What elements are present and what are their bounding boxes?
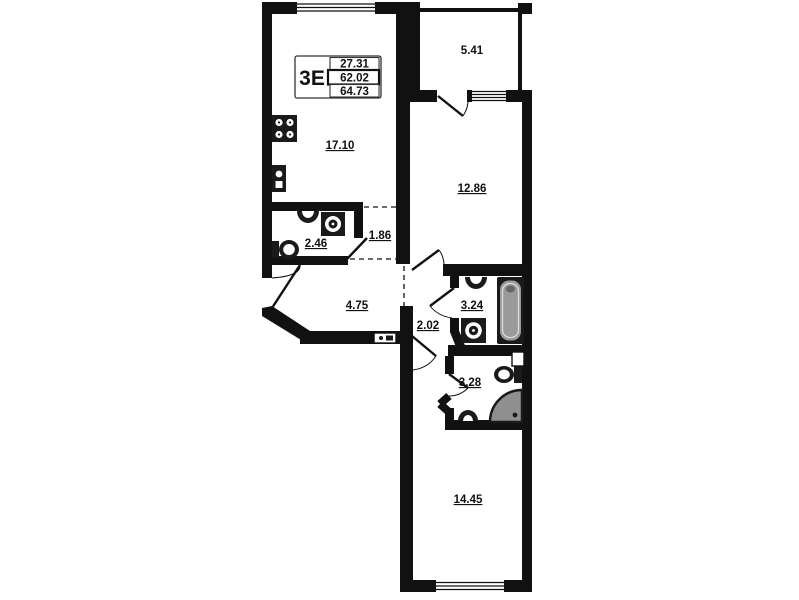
wall-balcony-right — [518, 10, 522, 92]
window-kitchen-top — [297, 4, 375, 11]
doors — [272, 96, 468, 396]
entry-door — [272, 265, 300, 308]
wall-bath1-right — [354, 202, 363, 238]
bathtub-icon — [497, 277, 524, 344]
room-label-bathroom2: 3.24 — [461, 300, 484, 312]
room-label-bedroom1: 12.86 — [458, 183, 487, 195]
vent-shaft — [512, 352, 524, 366]
washing-machine-icon — [321, 212, 345, 236]
wall-bottom-a — [400, 580, 436, 592]
kitchen-sink-icon — [272, 165, 286, 192]
bathroom1-door — [347, 238, 367, 259]
wall-bottom-b — [504, 580, 532, 592]
window-bedroom2-bottom — [436, 583, 504, 590]
balcony-door — [438, 96, 468, 116]
wall-spine-mid — [400, 306, 413, 334]
wall-balcony-left — [405, 2, 420, 102]
floor-plan-page: 5.41 17.10 12.86 2.46 1.86 4.75 2.02 3.2… — [0, 0, 799, 600]
window-balcony-bottom — [471, 92, 507, 101]
wall-balcony-bottom-a — [408, 90, 437, 102]
room-label-bathroom1: 2.46 — [305, 238, 327, 250]
room-label-vestibule: 2.02 — [417, 320, 439, 332]
wall-bedroom1-bottom — [443, 264, 532, 276]
room-label-balcony: 5.41 — [461, 45, 484, 57]
room-label-bedroom2: 14.45 — [454, 494, 483, 506]
wall-bath1-top — [272, 202, 360, 211]
room-label-wc: 3.28 — [459, 377, 482, 389]
legend-unit-type: 3Е — [299, 67, 325, 90]
shower-icon — [490, 390, 522, 422]
bathroom2-door — [430, 288, 454, 318]
room-label-hallway: 4.75 — [346, 300, 369, 312]
electrical-panel-icon — [374, 333, 396, 343]
bedroom1-door — [412, 250, 444, 270]
room-label-wardrobe: 1.86 — [369, 230, 391, 242]
vestibule-corridor-door — [412, 336, 436, 370]
toilet-icon — [272, 240, 299, 259]
wall-wc-left-upper — [445, 356, 454, 374]
floor-plan: 5.41 17.10 12.86 2.46 1.86 4.75 2.02 3.2… — [0, 0, 799, 600]
wall-vestibule-right-a — [450, 276, 459, 288]
legend-value-area: 62.02 — [340, 73, 369, 85]
room-label-kitchen-living: 17.10 — [326, 140, 355, 152]
washing-machine2-icon — [461, 318, 486, 343]
toilet2-icon — [494, 366, 522, 383]
wall-left-outer — [262, 2, 272, 278]
legend-value-total: 64.73 — [340, 86, 369, 98]
stove-icon — [272, 115, 297, 142]
legend-value-living: 27.31 — [340, 59, 369, 71]
unit-legend: 3Е 27.31 62.02 64.73 — [295, 56, 381, 98]
wall-spine-lower — [400, 331, 413, 592]
